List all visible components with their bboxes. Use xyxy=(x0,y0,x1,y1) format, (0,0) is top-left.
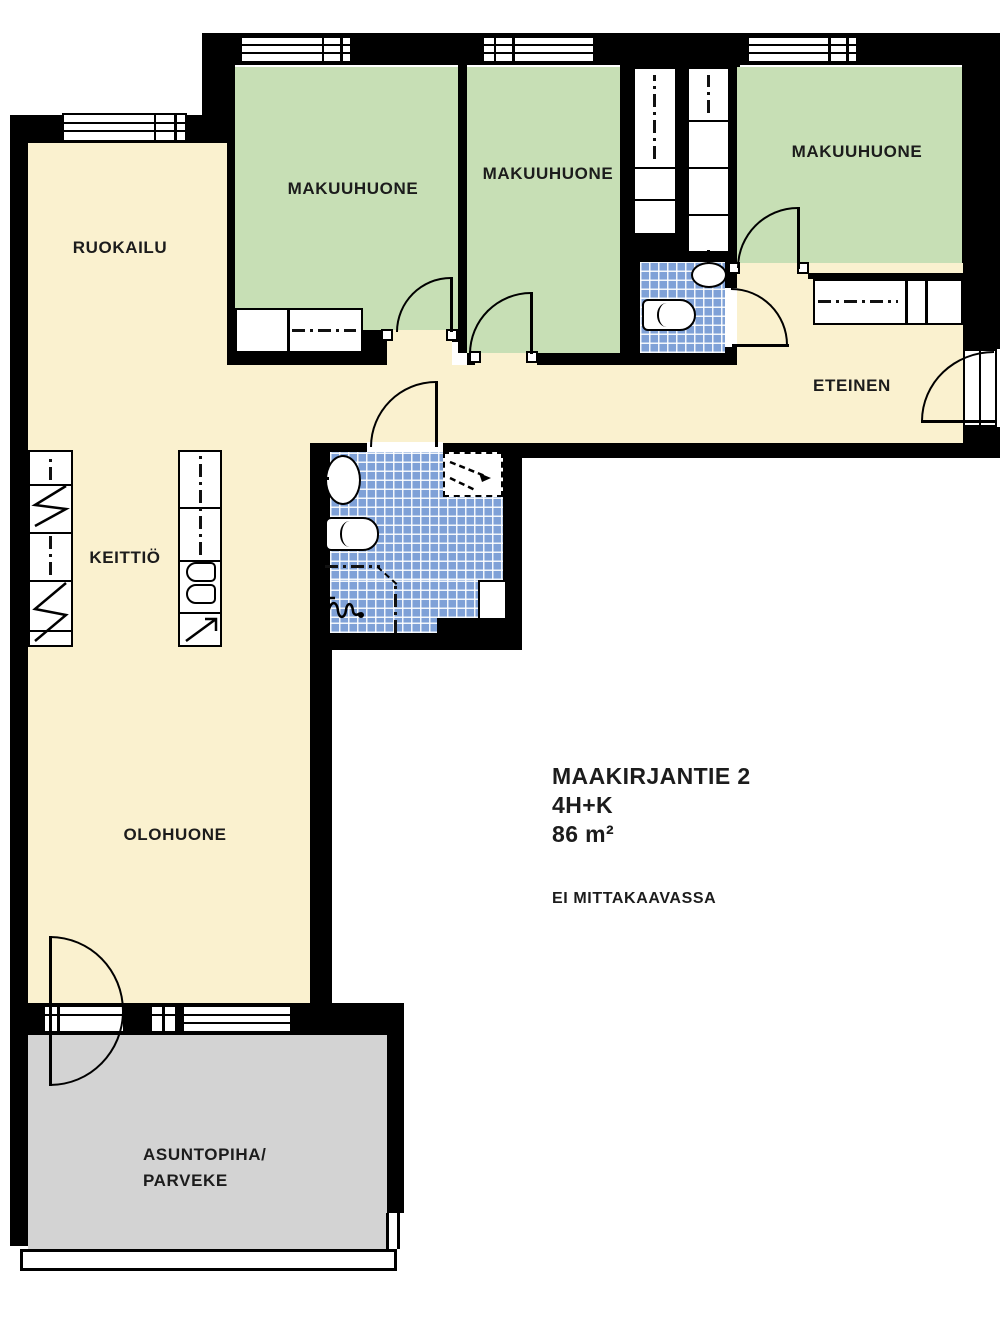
closet-divider xyxy=(634,167,676,169)
wall-living-right xyxy=(310,648,332,1003)
window-bedroom3 xyxy=(747,36,858,63)
washing-machine-icon xyxy=(314,584,374,624)
info-layout: 4H+K xyxy=(552,791,751,820)
window-bedroom2 xyxy=(482,36,595,63)
fridge-icon xyxy=(28,579,73,645)
info-address: MAAKIRJANTIE 2 xyxy=(552,762,751,791)
door-jamb xyxy=(381,329,393,341)
window-glass-line xyxy=(183,1022,291,1024)
closet-divider xyxy=(688,214,729,216)
window-divider xyxy=(846,37,849,62)
window-glass-line xyxy=(241,44,351,46)
floor-dining xyxy=(28,143,227,443)
window-glass-line xyxy=(748,44,857,46)
wall-right-upper xyxy=(962,65,1000,349)
balcony-rail-side xyxy=(386,1213,400,1249)
window-divider xyxy=(512,37,515,62)
window-dining xyxy=(62,113,187,142)
shower-icon xyxy=(443,452,503,497)
window-divider xyxy=(154,114,157,141)
kitchen-dashline-1 xyxy=(49,455,52,480)
wardrobe-divider xyxy=(925,280,928,324)
window-balcony-small xyxy=(150,1005,177,1033)
room-label-living: OLOHUONE xyxy=(123,825,226,845)
room-label-bedroom3: MAKUUHUONE xyxy=(792,142,923,162)
wc-tap-icon xyxy=(707,250,710,264)
window-divider xyxy=(494,37,497,62)
closet-divider xyxy=(688,167,729,169)
window-bedroom1 xyxy=(240,36,352,63)
balcony-label-line2: PARVEKE xyxy=(143,1168,266,1194)
closet-divider xyxy=(634,199,676,201)
window-glass-line xyxy=(748,52,857,54)
window-divider xyxy=(340,37,343,62)
room-label-hall: ETEINEN xyxy=(813,376,891,396)
wc-sink-icon xyxy=(691,262,727,288)
window-balcony-long xyxy=(182,1005,292,1033)
kitchen-dashline-2 xyxy=(49,533,52,575)
wall-dining-bed1 xyxy=(227,143,235,365)
bathroom-cabinet xyxy=(478,580,505,620)
closet-column2-dashline xyxy=(707,75,710,113)
closet-divider xyxy=(688,120,729,122)
room-label-dining: RUOKAILU xyxy=(73,238,168,258)
info-block: MAAKIRJANTIE 2 4H+K 86 m² xyxy=(552,762,751,849)
window-glass-line xyxy=(63,122,186,124)
wall-under-closet1 xyxy=(227,353,387,365)
floor-plan: RUOKAILU MAKUUHUONE MAKUUHUONE MAKUUHUON… xyxy=(0,0,1008,1344)
bathroom-dashline-v xyxy=(394,584,397,633)
balcony-label-line1: ASUNTOPIHA/ xyxy=(143,1142,266,1168)
window-glass-line xyxy=(483,44,594,46)
scale-note: EI MITTAKAAVASSA xyxy=(552,890,716,908)
island-dashline xyxy=(199,455,202,555)
wall-balcony-right xyxy=(387,1017,404,1213)
shower-arrow-icon xyxy=(445,454,500,494)
window-glass-line xyxy=(183,1014,291,1016)
stove-icon xyxy=(28,483,73,529)
window-divider xyxy=(828,37,831,62)
wardrobe-divider xyxy=(905,280,908,324)
bathroom-tap-icon xyxy=(313,477,329,480)
balcony-rail-bottom xyxy=(20,1249,397,1271)
window-glass-line xyxy=(241,52,351,54)
window-glass-line xyxy=(483,52,594,54)
wall-hall-bottom xyxy=(503,443,1000,458)
toilet-bowl-line xyxy=(340,521,359,546)
wall-bed1-bed2 xyxy=(458,65,467,353)
room-label-bedroom2: MAKUUHUONE xyxy=(483,164,614,184)
floor-bed1-door-recess xyxy=(387,330,452,365)
window-divider xyxy=(322,37,325,62)
wall-left-outer xyxy=(10,143,28,1246)
kitchen-sink-bowl-1 xyxy=(186,562,216,582)
window-glass-line xyxy=(63,130,186,132)
room-label-kitchen: KEITTIÖ xyxy=(89,548,160,568)
closet-divider xyxy=(287,309,290,352)
info-area: 86 m² xyxy=(552,820,751,849)
window-divider xyxy=(162,1006,165,1032)
window-divider xyxy=(174,114,177,141)
closet-bedroom1-dashline xyxy=(292,329,356,332)
bathroom-toilet-icon xyxy=(325,517,379,551)
bathroom-dashline-h xyxy=(325,565,380,568)
dish-drainer-icon xyxy=(180,612,222,645)
bathroom-tap-bar xyxy=(312,470,315,487)
wc-toilet-icon xyxy=(642,299,696,331)
room-label-balcony: ASUNTOPIHA/ PARVEKE xyxy=(143,1142,266,1194)
bathroom-sink-icon xyxy=(325,455,361,505)
closet-column1-dashline xyxy=(653,75,656,159)
room-label-bedroom1: MAKUUHUONE xyxy=(288,179,419,199)
wardrobe-hall-dashline xyxy=(818,300,898,303)
kitchen-sink-bowl-2 xyxy=(186,584,216,604)
toilet-bowl-line xyxy=(657,303,676,327)
wall-bed2-bottom-right xyxy=(537,353,622,365)
